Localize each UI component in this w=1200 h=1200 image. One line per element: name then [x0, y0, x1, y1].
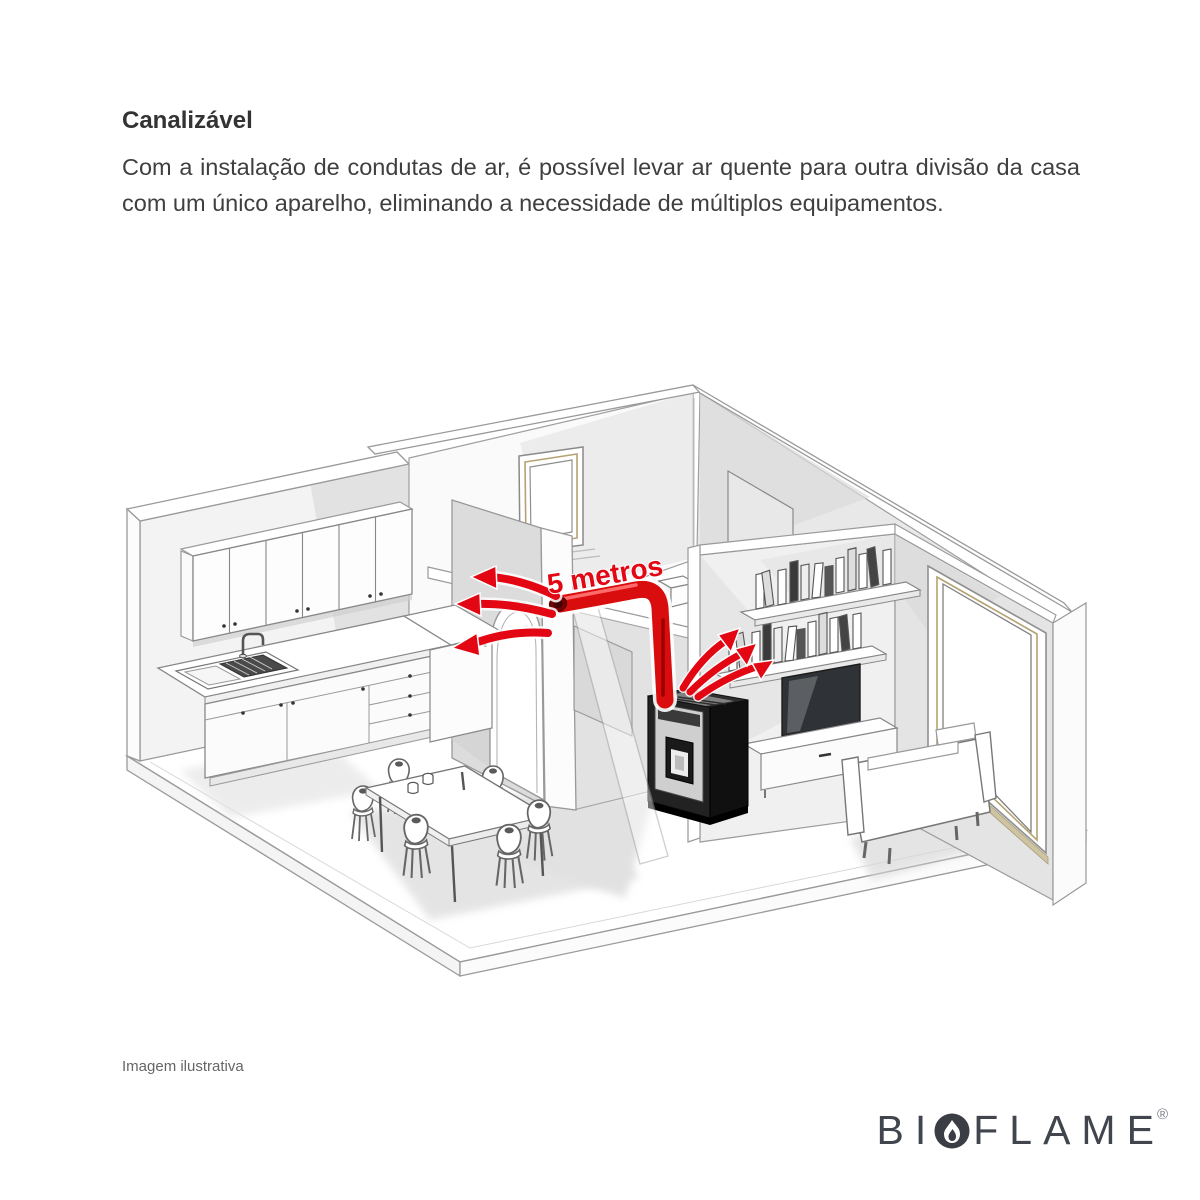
page: Canalizável Com a instalação de condutas…: [0, 0, 1200, 1200]
stove-window: [666, 737, 693, 784]
registered-mark: ®: [1157, 1106, 1168, 1123]
flame-icon: [933, 1112, 971, 1150]
logo-text-suffix: FLAME: [973, 1110, 1165, 1151]
brand-logo: BI FLAME ®: [876, 1110, 1168, 1151]
logo-text-prefix: BI: [876, 1110, 937, 1151]
caption: Imagem ilustrativa: [122, 1058, 244, 1075]
isometric-house-illustration: 5 metros: [0, 0, 1200, 1200]
